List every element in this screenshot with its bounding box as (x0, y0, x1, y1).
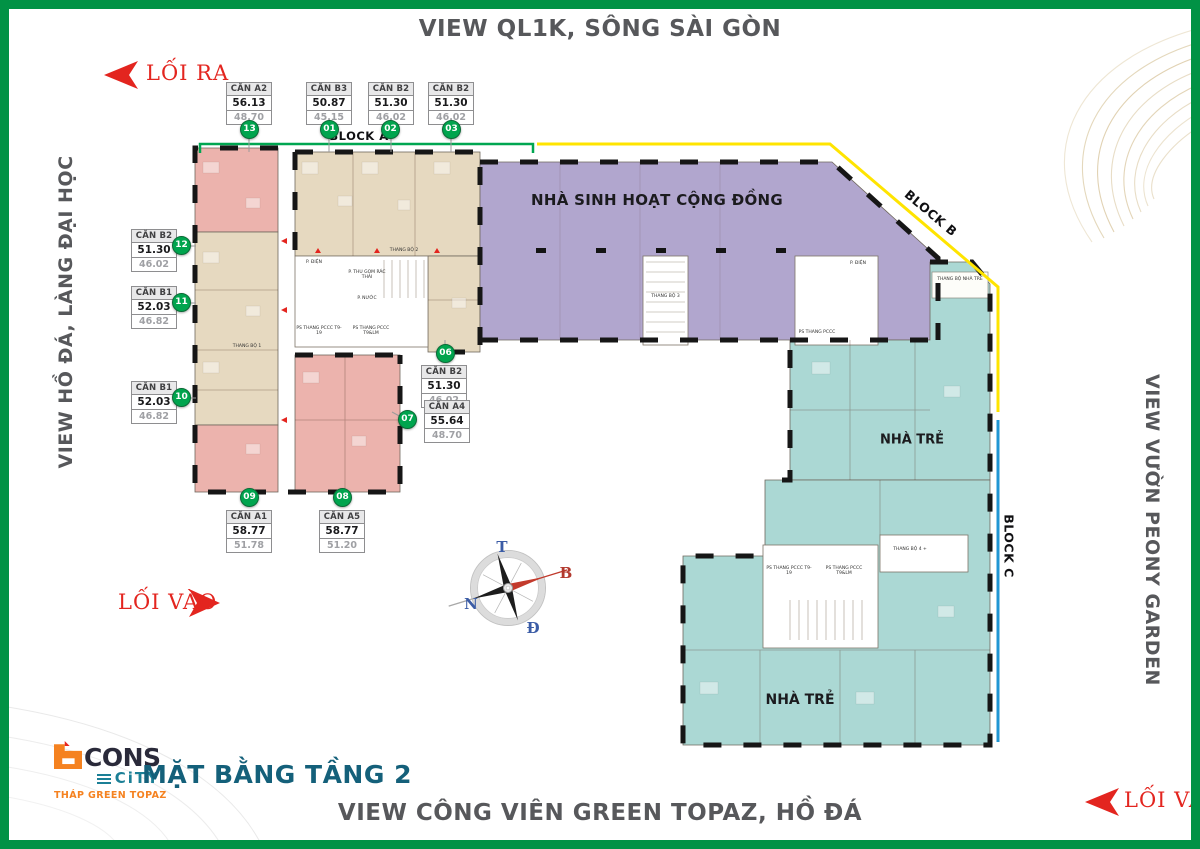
unit-name: CĂN B1 (132, 287, 176, 300)
room-label: PS THANG PCCC T9-19 (765, 566, 813, 577)
room-label: P. THU GOM RÁC THẢI (348, 270, 386, 281)
unit-area-total: 58.77 (320, 524, 364, 539)
compass-letter-east: Đ (526, 619, 539, 637)
floorplan-page: VIEW QL1K, SÔNG SÀI GÒN VIEW CÔNG VIÊN G… (0, 0, 1200, 849)
unit-badge-06: 06 (436, 344, 455, 363)
unit-area-total: 51.30 (369, 96, 413, 111)
unit-area-total: 50.87 (307, 96, 351, 111)
unit-label-08: CĂN A5 58.77 51.20 (319, 510, 365, 553)
room-label: P. NƯỚC (348, 296, 386, 301)
unit-badge-09: 09 (240, 488, 259, 507)
room-label: PS THANG PCCC T9&LM (818, 566, 870, 577)
decorative-swirl-top-right (1064, 28, 1200, 242)
unit-area-total: 58.77 (227, 524, 271, 539)
bcons-logo-mark-icon (54, 740, 82, 770)
view-title-top: VIEW QL1K, SÔNG SÀI GÒN (0, 16, 1200, 42)
unit-area-total: 51.30 (429, 96, 473, 111)
unit-area-net: 46.02 (132, 258, 176, 271)
unit-area-net: 51.20 (320, 539, 364, 552)
view-title-right: VIEW VƯỜN PEONY GARDEN (1141, 374, 1163, 686)
room-label: PS THANG PCCC T9-19 (296, 326, 342, 337)
block-c-label: BLOCK C (1002, 514, 1017, 578)
floor-plan-graphic (0, 0, 1200, 849)
unit-name: CĂN B2 (132, 230, 176, 243)
unit-area-net: 48.70 (425, 429, 469, 442)
unit-area-total: 55.64 (425, 414, 469, 429)
unit-badge-11: 11 (172, 293, 191, 312)
room-label: P. ĐIỆN (840, 261, 876, 266)
view-title-bottom: VIEW CÔNG VIÊN GREEN TOPAZ, HỒ ĐÁ (0, 800, 1200, 826)
floor-plan-title: MẶT BẰNG TẦNG 2 (142, 760, 412, 789)
unit-label-03: CĂN B2 51.30 46.02 (428, 82, 474, 125)
room-label: PS THANG PCCC T9&LM (346, 326, 396, 337)
unit-badge-08: 08 (333, 488, 352, 507)
unit-name: CĂN A1 (227, 511, 271, 524)
room-label: THANG BỘ 3 (643, 294, 688, 299)
exit-arrow-icon (104, 61, 138, 89)
unit-label-11: CĂN B1 52.03 46.82 (131, 286, 177, 329)
room-label: THANG BỘ 2 (381, 248, 427, 253)
compass-rose-icon (438, 535, 577, 638)
unit-label-09: CĂN A1 58.77 51.78 (226, 510, 272, 553)
room-label: THANG BỘ 4 + (884, 547, 936, 552)
unit-area-net: 46.82 (132, 315, 176, 328)
unit-name: CĂN B1 (132, 382, 176, 395)
compass-letter-north: B (560, 564, 573, 582)
exit-label: LỐI RA (146, 61, 229, 85)
unit-badge-13: 13 (240, 120, 259, 139)
unit-area-total: 56.13 (227, 96, 271, 111)
plan-zones (195, 148, 990, 745)
unit-area-net: 46.82 (132, 410, 176, 423)
view-title-left: VIEW HỒ ĐÁ, LÀNG ĐẠI HỌC (55, 155, 77, 468)
compass-letter-west: T (496, 538, 507, 556)
logo-lines-icon (97, 778, 111, 780)
unit-label-10: CĂN B1 52.03 46.82 (131, 381, 177, 424)
community-hall-label: NHÀ SINH HOẠT CỘNG ĐỒNG (531, 191, 783, 209)
unit-area-net: 51.78 (227, 539, 271, 552)
unit-label-13: CĂN A2 56.13 48.70 (226, 82, 272, 125)
unit-badge-12: 12 (172, 236, 191, 255)
unit-name: CĂN A2 (227, 83, 271, 96)
zone-apartment-beige-top (295, 152, 480, 256)
compass-letter-south: N (464, 595, 478, 613)
unit-area-total: 51.30 (132, 243, 176, 258)
zone-apartment-pink-a2 (195, 148, 278, 232)
unit-badge-07: 07 (398, 410, 417, 429)
entrance-bottom-label: LỐI VÀO (1124, 788, 1200, 812)
unit-area-total: 52.03 (132, 300, 176, 315)
unit-label-07: CĂN A4 55.64 48.70 (424, 400, 470, 443)
unit-badge-03: 03 (442, 120, 461, 139)
unit-label-12: CĂN B2 51.30 46.02 (131, 229, 177, 272)
unit-badge-02: 02 (381, 120, 400, 139)
unit-area-total: 51.30 (422, 379, 466, 394)
unit-badge-10: 10 (172, 388, 191, 407)
room-label: P. ĐIỆN (297, 260, 331, 265)
kindergarten-lower-label: NHÀ TRẺ (765, 692, 834, 708)
room-label: THANG BỘ 1 (224, 344, 270, 349)
entrance-left-label: LỐI VÀO (118, 590, 217, 614)
unit-name: CĂN A5 (320, 511, 364, 524)
unit-badge-01: 01 (320, 120, 339, 139)
unit-name: CĂN B2 (369, 83, 413, 96)
unit-name: CĂN B3 (307, 83, 351, 96)
unit-label-02: CĂN B2 51.30 46.02 (368, 82, 414, 125)
unit-label-01: CĂN B3 50.87 45.15 (306, 82, 352, 125)
room-label: THANG BỘ NHÀ TRẺ (934, 277, 986, 282)
logo-tagline: THÁP GREEN TOPAZ (54, 790, 174, 801)
room-label: PS THANG PCCC (796, 330, 838, 335)
zone-apartment-pink-a1 (195, 425, 278, 492)
unit-area-total: 52.03 (132, 395, 176, 410)
unit-name: CĂN B2 (422, 366, 466, 379)
unit-name: CĂN A4 (425, 401, 469, 414)
kindergarten-upper-label: NHÀ TRẺ (880, 433, 944, 448)
unit-name: CĂN B2 (429, 83, 473, 96)
